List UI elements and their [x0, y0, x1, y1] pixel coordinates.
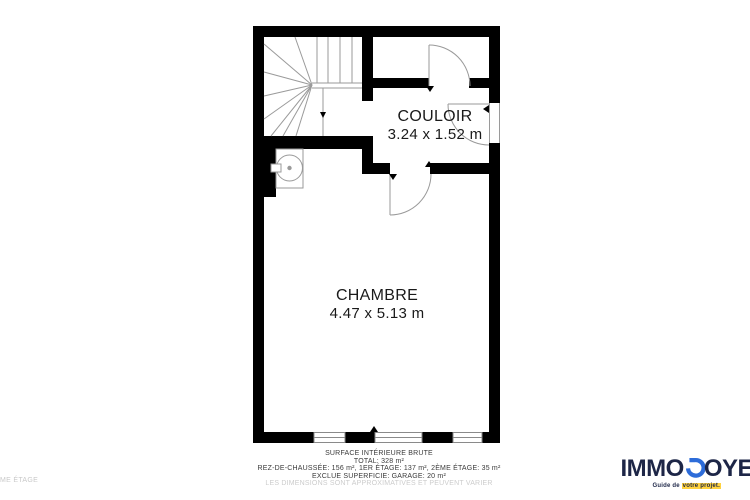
summary-floors: REZ-DE-CHAUSSÉE: 156 m², 1ER ÉTAGE: 137 …	[258, 465, 501, 473]
floorplan-drawing	[0, 0, 750, 500]
brand-logo: IMMOOYE Guide de votre projet.	[620, 456, 750, 489]
summary-excluded: EXCLUE SUPERFICIE: GARAGE: 20 m²	[258, 473, 501, 481]
wall-right-lower	[489, 143, 500, 443]
tagline-prefix: Guide de	[653, 483, 682, 489]
surface-summary: SURFACE INTÉRIEURE BRUTE TOTAL: 328 m² R…	[258, 450, 501, 488]
room-dimensions: 4.47 x 5.13 m	[330, 305, 425, 323]
staircase-icon	[264, 37, 362, 136]
wall-toproom-right	[469, 78, 489, 88]
logo-tagline: Guide de votre projet.	[620, 483, 750, 489]
floor-label: ME ÉTAGE	[0, 477, 38, 484]
room-label-couloir: COULOIR 3.24 x 1.52 m	[388, 108, 483, 144]
wall-stairs-couloir	[362, 37, 373, 101]
tagline-highlight: votre projet.	[682, 483, 721, 489]
washbasin-icon	[271, 149, 303, 188]
wall-below-stairs	[264, 136, 363, 149]
walls	[253, 26, 500, 443]
wall-couloir-chambre-left	[373, 163, 390, 174]
logo-text-oye: OYE	[704, 455, 750, 482]
room-name: CHAMBRE	[330, 287, 425, 305]
room-dimensions: 3.24 x 1.52 m	[388, 126, 483, 144]
floorplan-page: COULOIR 3.24 x 1.52 m CHAMBRE 4.47 x 5.1…	[0, 0, 750, 500]
door-icon-top-room	[429, 45, 470, 86]
room-label-chambre: CHAMBRE 4.47 x 5.13 m	[330, 287, 425, 323]
logo-wordmark: IMMOOYE	[620, 456, 750, 483]
window-icon-left	[314, 433, 345, 443]
arrow-icon-rightwall-door	[483, 105, 489, 113]
logo-d-icon	[683, 456, 705, 483]
arrow-icon-stairs	[320, 112, 326, 118]
summary-title: SURFACE INTÉRIEURE BRUTE	[258, 450, 501, 458]
wall-right-upper	[489, 26, 500, 103]
door-icon-chambre	[390, 174, 431, 215]
wall-top	[253, 26, 500, 37]
window-icon-right	[453, 433, 482, 443]
arrow-icon-toproom-door	[426, 86, 434, 92]
windows	[314, 433, 482, 443]
logo-text-immo: IMMO	[620, 455, 683, 482]
wall-column	[362, 136, 373, 174]
wall-left	[253, 26, 264, 443]
wall-toproom-left	[373, 78, 429, 88]
arrow-icon-window	[370, 426, 378, 432]
wall-couloir-chambre-right	[430, 163, 489, 174]
window-icon-middle	[375, 433, 422, 443]
room-name: COULOIR	[388, 108, 483, 126]
summary-disclaimer: LES DIMENSIONS SONT APPROXIMATIVES ET PE…	[258, 480, 501, 488]
